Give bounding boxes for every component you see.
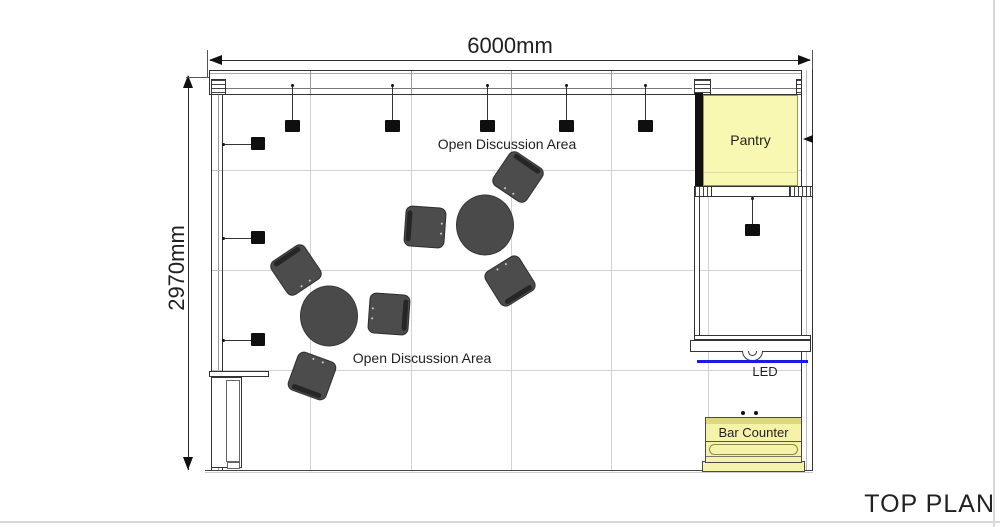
chair <box>286 350 339 403</box>
open-discussion-label-top: Open Discussion Area <box>427 136 587 152</box>
ceiling-light-icon <box>480 120 495 132</box>
wall-light-icon <box>251 137 265 150</box>
wall-light-stem <box>225 144 251 145</box>
right-wall <box>801 70 813 470</box>
chair-hinge-dot <box>441 223 443 225</box>
ceiling-light-icon <box>638 120 653 132</box>
chair-hinge-dot <box>300 285 303 288</box>
bar-counter-inner-band <box>709 444 798 455</box>
partition-foot <box>227 462 240 469</box>
pantry-floor-line <box>704 172 797 173</box>
light-track-left <box>226 88 692 89</box>
chair-backrest <box>401 299 408 330</box>
tap-dot-icon <box>741 411 745 415</box>
bar-counter-divider <box>706 441 801 442</box>
chair-hinge-dot <box>505 263 508 266</box>
led-label: LED <box>735 364 795 379</box>
chair-hinge-dot <box>322 361 325 364</box>
ceiling-light-stem <box>566 87 567 121</box>
wall-light-icon <box>251 231 265 244</box>
pantry-left-solid-wall <box>695 93 703 187</box>
chair-hinge-dot <box>512 192 515 195</box>
chair-backrest <box>273 246 301 267</box>
discussion-table <box>300 286 358 347</box>
page-title: TOP PLAN <box>820 490 995 519</box>
height-dimension-label: 2970mm <box>164 225 190 311</box>
bottom-boundary-shadow <box>205 472 813 473</box>
pendant-light-stem <box>752 200 753 225</box>
bar-counter-label: Bar Counter <box>706 425 801 440</box>
extension-line-left <box>207 50 208 78</box>
chair-backrest <box>405 210 412 241</box>
wall-post <box>211 79 226 95</box>
dimension-arrow-down-icon <box>183 457 193 470</box>
wall-joint <box>511 71 512 94</box>
wall-post <box>694 186 712 197</box>
floor-grid-line <box>411 95 412 470</box>
left-wall-joint <box>212 270 222 271</box>
chair-backrest <box>513 153 541 174</box>
chair <box>403 205 447 249</box>
right-wall-inner-line <box>806 70 807 470</box>
ceiling-light-icon <box>385 120 400 132</box>
chair-hinge-dot <box>372 307 374 309</box>
wall-joint <box>310 71 311 94</box>
chair <box>482 253 538 309</box>
ceiling-light-icon <box>559 120 574 132</box>
ceiling-light-icon <box>285 120 300 132</box>
pantry-label: Pantry <box>703 132 798 148</box>
ceiling-light-stem <box>392 87 393 121</box>
pendant-light-icon <box>745 224 760 236</box>
corridor-left-wall <box>694 197 700 335</box>
open-discussion-label-bottom: Open Discussion Area <box>342 350 502 366</box>
width-dimension-label: 6000mm <box>430 33 590 59</box>
chair-backrest <box>291 383 322 398</box>
dimension-arrow-left-icon <box>209 55 222 65</box>
ceiling-light-stem <box>292 87 293 121</box>
left-wall-joint <box>212 170 222 171</box>
wall-light-icon <box>251 333 265 346</box>
floor-grid-line <box>611 95 612 470</box>
tap-dot-icon <box>754 411 758 415</box>
sheet-right-border <box>993 0 995 527</box>
chair-hinge-dot <box>440 233 442 235</box>
chair-hinge-dot <box>308 279 311 282</box>
floor-plan-canvas: 6000mm 2970mm Pantry LED Bar Counter <box>0 0 1000 527</box>
chair-backrest <box>504 284 533 305</box>
wall-joint <box>411 71 412 94</box>
chair-hinge-dot <box>312 358 315 361</box>
chair <box>367 292 411 336</box>
wall-light-stem <box>225 238 251 239</box>
chair-hinge-dot <box>504 187 507 190</box>
bar-counter-divider <box>706 456 801 457</box>
partition-inner-frame <box>226 380 240 462</box>
ceiling-light-stem <box>487 87 488 121</box>
top-dimension-line <box>210 60 810 61</box>
bar-counter-top-band <box>706 418 801 424</box>
discussion-table <box>456 195 514 256</box>
chair-hinge-dot <box>496 268 499 271</box>
wall-light-stem <box>225 340 251 341</box>
dimension-arrow-right-icon <box>798 55 811 65</box>
extension-tick-top <box>186 77 211 78</box>
sheet-bottom-border <box>0 521 1000 523</box>
wall-post <box>789 186 813 197</box>
wall-joint <box>611 71 612 94</box>
led-strip <box>697 360 808 363</box>
light-track-right <box>712 88 796 89</box>
ceiling-light-stem <box>645 87 646 121</box>
entry-arrow-icon <box>803 135 813 143</box>
chair-hinge-dot <box>371 317 373 319</box>
